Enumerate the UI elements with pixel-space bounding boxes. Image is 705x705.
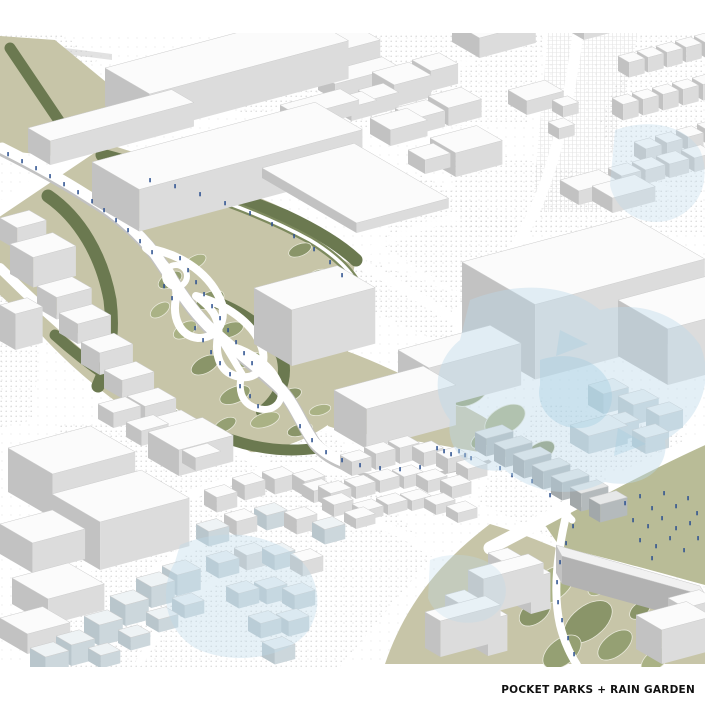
building [0, 298, 43, 350]
caption-label: POCKET PARKS + RAIN GARDEN [501, 684, 695, 696]
axonometric-site-plan [0, 0, 705, 705]
poster: POCKET PARKS + RAIN GARDEN [0, 0, 705, 705]
caption-row: POCKET PARKS + RAIN GARDEN [501, 678, 695, 697]
rain-wash [610, 124, 705, 222]
site-plan-illustration [0, 0, 705, 705]
